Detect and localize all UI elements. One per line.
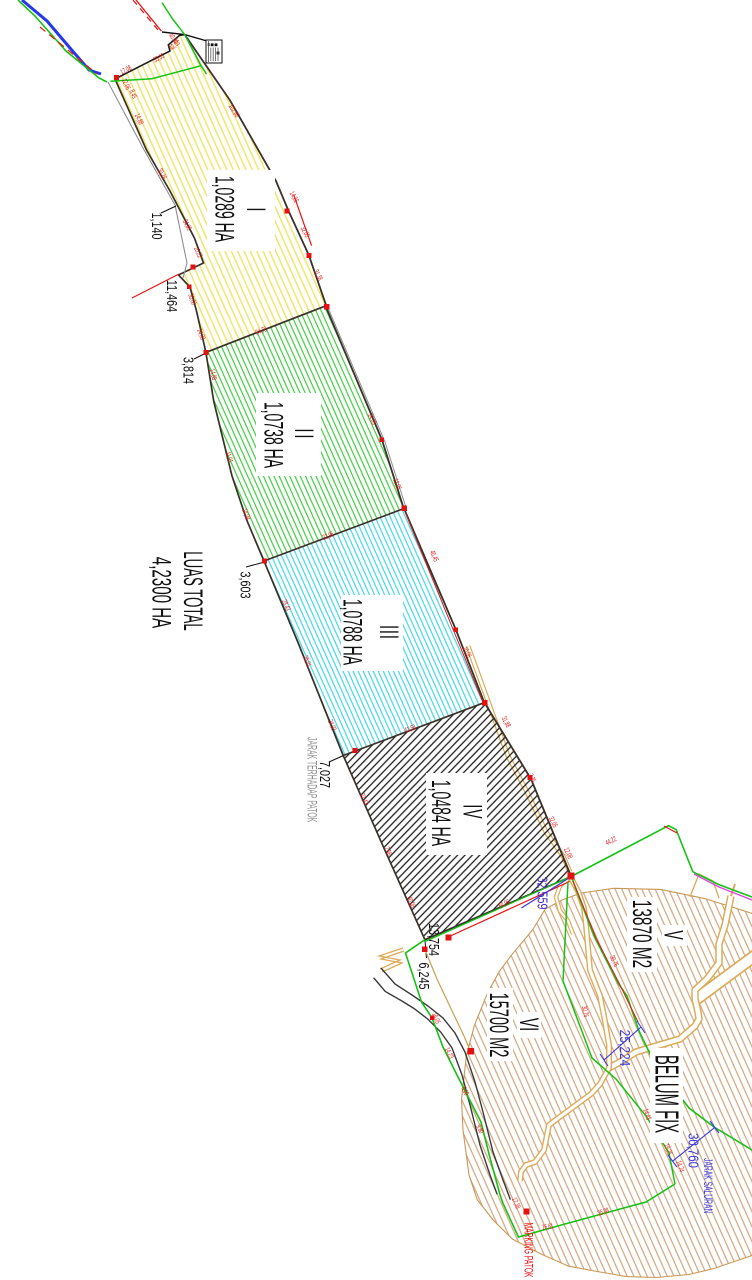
svg-text:II: II [289, 429, 319, 441]
svg-text:1,0289 HA: 1,0289 HA [209, 176, 239, 243]
svg-text:32,559: 32,559 [534, 877, 551, 910]
svg-text:3,603: 3,603 [237, 572, 254, 599]
svg-text:4,2300 HA: 4,2300 HA [147, 557, 178, 629]
svg-text:1,0484 HA: 1,0484 HA [426, 780, 456, 847]
svg-text:25,224: 25,224 [617, 1030, 634, 1067]
svg-text:13,754: 13,754 [425, 923, 442, 956]
svg-text:13870 M2: 13870 M2 [627, 900, 658, 968]
svg-text:16,61: 16,61 [542, 1222, 555, 1232]
svg-text:11,464: 11,464 [163, 280, 180, 312]
svg-text:LUAS TOTAL: LUAS TOTAL [178, 551, 208, 630]
svg-text:JARAK TERHADAP PATOK: JARAK TERHADAP PATOK [304, 737, 319, 823]
svg-text:IV: IV [457, 804, 487, 819]
svg-text:6,245: 6,245 [415, 963, 432, 990]
svg-text:JARAK SALURAN: JARAK SALURAN [700, 1158, 714, 1213]
svg-text:15700 M2: 15700 M2 [484, 993, 515, 1058]
svg-text:BELUM FIX: BELUM FIX [648, 1055, 684, 1133]
svg-text:1,0788 HA: 1,0788 HA [337, 599, 367, 666]
svg-text:1,140: 1,140 [148, 213, 165, 240]
svg-text:1,0738 HA: 1,0738 HA [258, 402, 288, 469]
svg-text:I: I [241, 208, 271, 214]
svg-text:3,814: 3,814 [180, 357, 197, 384]
svg-text:III: III [374, 625, 404, 640]
svg-text:30,760: 30,760 [685, 1133, 702, 1168]
svg-text:V: V [658, 930, 688, 940]
svg-text:MARKING PATOK: MARKING PATOK [521, 1223, 535, 1278]
svg-text:VI: VI [514, 1018, 544, 1031]
